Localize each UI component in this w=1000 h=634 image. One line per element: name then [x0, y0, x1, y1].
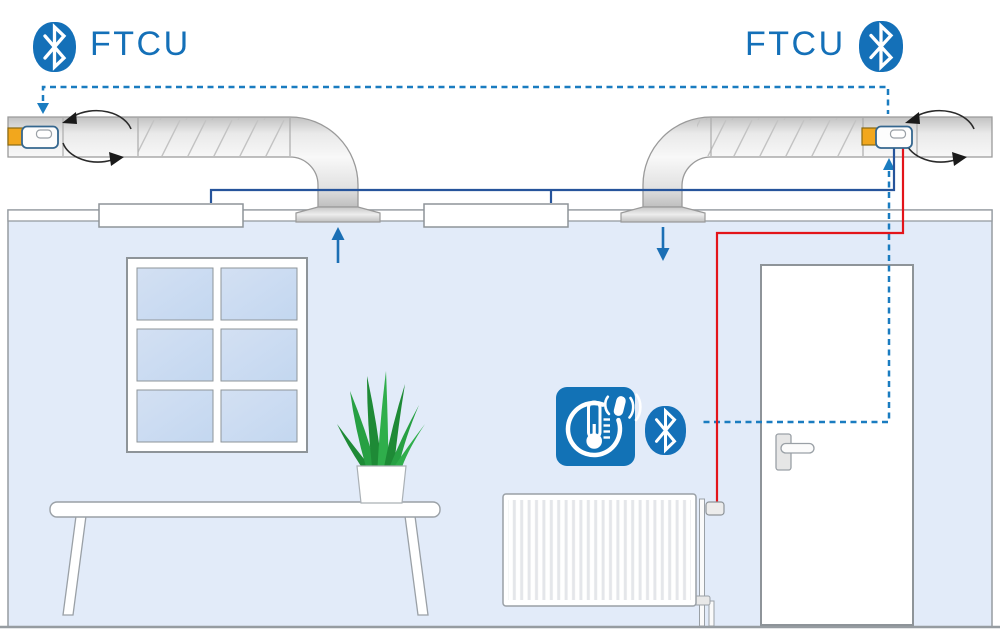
device-slot [891, 130, 906, 138]
window-pane [221, 329, 297, 381]
ftcu-device-left [8, 127, 58, 149]
plant-pot [357, 466, 406, 503]
window [127, 258, 307, 452]
radiator-pipe [700, 499, 705, 626]
ceiling-box-middle [424, 204, 568, 227]
ceiling-box-left [99, 204, 243, 227]
wireless-link-ftcu-to-ftcu [37, 87, 888, 114]
door-handle-lever [781, 444, 814, 454]
table-top [50, 502, 440, 517]
supply-duct-right [621, 117, 992, 222]
diagram-canvas: FTCU FTCU [0, 0, 1000, 634]
dashed-line [43, 87, 888, 114]
ftcu-label-left: FTCU [90, 27, 191, 61]
device-slot [37, 130, 52, 138]
bluetooth-icon-left [33, 22, 76, 72]
window-pane [137, 390, 213, 442]
device-orange-module [862, 128, 877, 145]
radiator-ribs [508, 500, 691, 600]
window-pane [137, 329, 213, 381]
thermostat-radio-icon [556, 387, 640, 466]
ftcu-device-right [862, 127, 912, 149]
hvac-room-diagram [0, 0, 1000, 634]
ceiling-vent-exhaust [296, 207, 380, 222]
radiator-valve-actuator [706, 502, 724, 515]
duct-spiral-hatch [697, 118, 863, 156]
arrow-down-icon [37, 103, 49, 114]
duct-spiral-hatch [138, 118, 290, 156]
window-pane [221, 390, 297, 442]
window-pane [137, 268, 213, 320]
ceiling-vent-supply [621, 207, 705, 222]
ftcu-label-right: FTCU [745, 27, 846, 61]
radiator [503, 494, 714, 626]
window-pane [221, 268, 297, 320]
bluetooth-icon-right [859, 21, 903, 72]
bluetooth-icon-room [645, 406, 686, 455]
device-orange-module [8, 128, 23, 145]
